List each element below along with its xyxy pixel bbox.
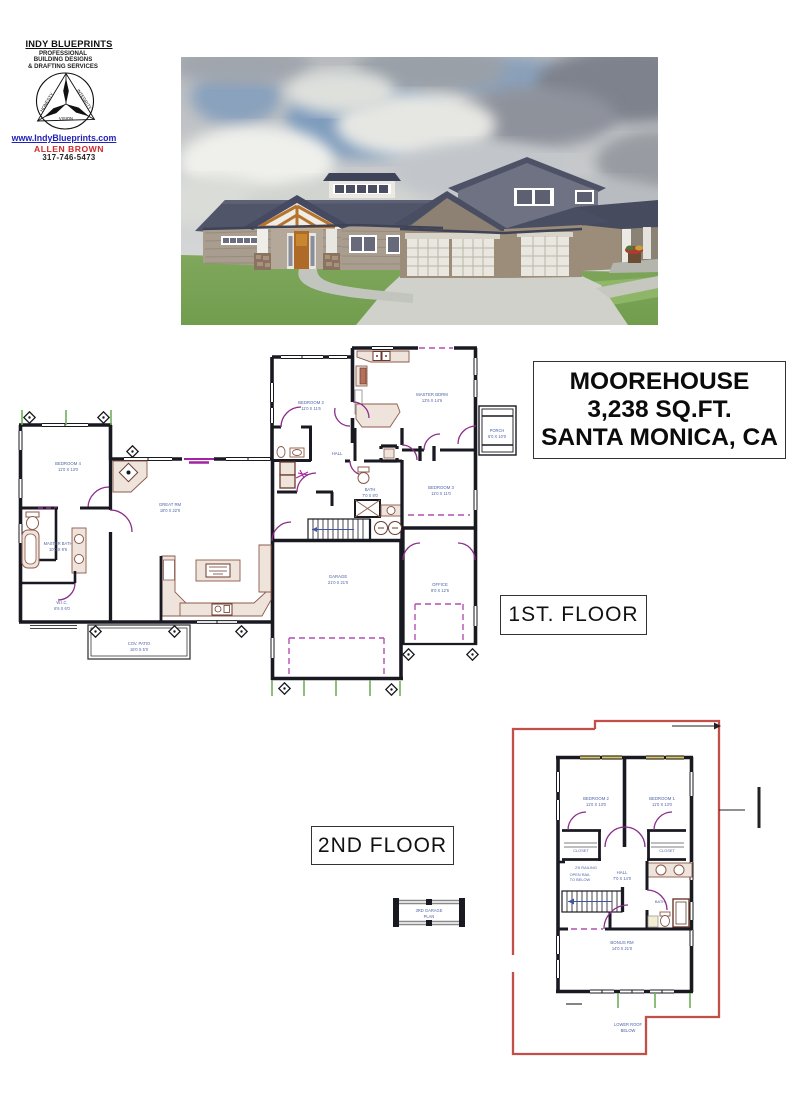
svg-text:13'6 X 14'6: 13'6 X 14'6 — [422, 398, 443, 403]
svg-text:8'0 X 12'6: 8'0 X 12'6 — [431, 588, 450, 593]
svg-text:BATH: BATH — [655, 899, 665, 904]
svg-text:11'0 X 11'6: 11'0 X 11'6 — [301, 406, 321, 411]
svg-text:HALL: HALL — [332, 451, 343, 456]
svg-text:14'0 X 21'0: 14'0 X 21'0 — [612, 946, 633, 951]
svg-text:GARAGE: GARAGE — [329, 574, 348, 579]
svg-text:11'0 X 13'0: 11'0 X 13'0 — [586, 802, 607, 807]
svg-text:LOWER ROOF: LOWER ROOF — [614, 1022, 642, 1027]
svg-text:BEDROOM 4: BEDROOM 4 — [55, 461, 81, 466]
svg-text:MASTER BATH: MASTER BATH — [44, 541, 73, 546]
svg-text:BATH: BATH — [365, 487, 376, 492]
svg-text:W.I.C.: W.I.C. — [56, 600, 67, 605]
svg-text:BELOW: BELOW — [621, 1028, 636, 1033]
svg-text:11'0 X 13'0: 11'0 X 13'0 — [58, 467, 79, 472]
svg-text:HALL: HALL — [617, 870, 628, 875]
svg-text:TO BELOW: TO BELOW — [570, 877, 591, 882]
svg-text:10'0 X 9'6: 10'0 X 9'6 — [49, 547, 68, 552]
svg-text:PORCH: PORCH — [490, 428, 505, 433]
svg-text:6'6 X 6'0: 6'6 X 6'0 — [54, 606, 70, 611]
svg-text:MASTER BDRM: MASTER BDRM — [416, 392, 448, 397]
svg-text:OFFICE: OFFICE — [432, 582, 448, 587]
svg-text:CLOSET: CLOSET — [573, 848, 589, 853]
svg-text:18'0 X 22'0: 18'0 X 22'0 — [160, 508, 181, 513]
svg-text:PLAN: PLAN — [424, 914, 435, 919]
svg-text:7'0 X 14'0: 7'0 X 14'0 — [613, 876, 632, 881]
svg-text:BEDROOM 1: BEDROOM 1 — [649, 796, 675, 801]
svg-text:11'0 X 13'0: 11'0 X 13'0 — [652, 802, 673, 807]
svg-text:3RD GARAGE: 3RD GARAGE — [416, 908, 443, 913]
svg-text:11'0 X 11'0: 11'0 X 11'0 — [431, 491, 451, 496]
svg-text:6'0 X 10'0: 6'0 X 10'0 — [488, 434, 507, 439]
svg-text:BEDROOM 3: BEDROOM 3 — [428, 485, 454, 490]
svg-text:7'0 X 8'0: 7'0 X 8'0 — [362, 493, 378, 498]
svg-text:BEDROOM 2: BEDROOM 2 — [583, 796, 609, 801]
svg-text:2'6 RAILING: 2'6 RAILING — [575, 865, 597, 870]
svg-text:BEDROOM 2: BEDROOM 2 — [298, 400, 324, 405]
svg-text:BONUS RM: BONUS RM — [610, 940, 634, 945]
svg-text:GREAT RM: GREAT RM — [159, 502, 182, 507]
svg-text:21'0 X 21'0: 21'0 X 21'0 — [328, 580, 349, 585]
svg-text:COV. PATIO: COV. PATIO — [128, 641, 150, 646]
svg-text:16'0 X 5'0: 16'0 X 5'0 — [130, 647, 149, 652]
svg-text:CLOSET: CLOSET — [659, 848, 675, 853]
